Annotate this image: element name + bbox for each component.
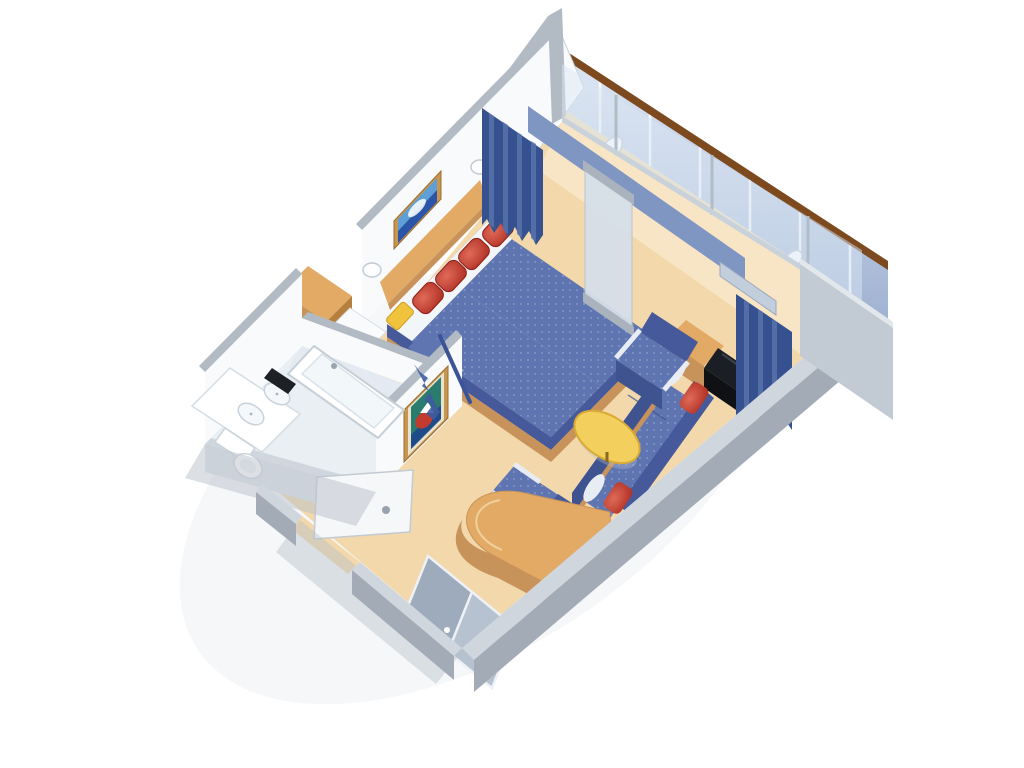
stateroom-floorplan-render: 3D isometric cutaway rendering of a crui… — [0, 0, 1024, 768]
door-knob — [382, 506, 390, 514]
wall-sconce — [363, 263, 381, 277]
isometric-cabin-scene: 3D isometric cutaway rendering of a crui… — [0, 0, 1024, 768]
